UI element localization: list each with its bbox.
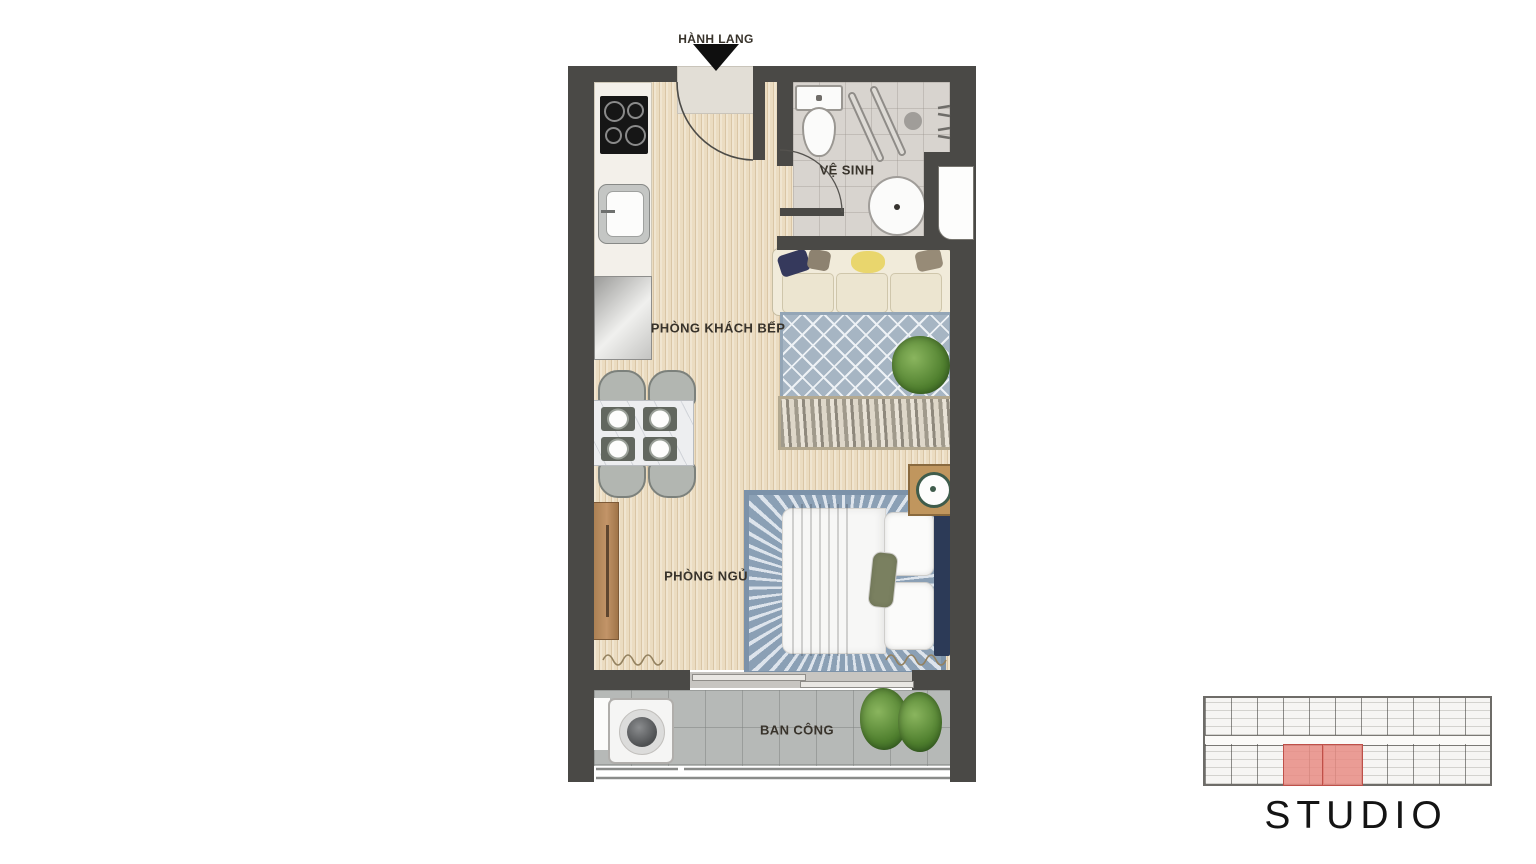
keyplan-units-top — [1205, 698, 1490, 735]
entry-arrow-icon — [693, 44, 739, 71]
shower-handle-icon — [938, 106, 950, 138]
highlighted-unit — [1322, 744, 1363, 786]
living-kitchen-label: PHÒNG KHÁCH BẾP — [651, 321, 786, 336]
highlighted-unit — [1283, 744, 1324, 786]
plan-linework — [568, 64, 978, 784]
bedroom-label: PHÒNG NGỦ — [664, 569, 748, 584]
bathroom-door-arc — [780, 150, 842, 212]
unit-type-label: STUDIO — [1264, 794, 1447, 838]
keyplan-building — [1203, 696, 1492, 786]
curtain-squiggle-right — [886, 655, 946, 665]
curtain-squiggle-left — [603, 655, 663, 665]
balcony-railing — [596, 769, 950, 778]
shower-drain-icon — [904, 112, 922, 130]
bathroom-label: VỆ SINH — [820, 163, 875, 178]
floor-plan-canvas: HÀNH LANG VỆ SINH PHÒNG KHÁCH BẾP PHÒNG … — [0, 0, 1536, 864]
balcony-label: BAN CÔNG — [760, 723, 834, 738]
entry-door-arc — [677, 82, 753, 160]
shower-glass-door — [852, 90, 902, 158]
